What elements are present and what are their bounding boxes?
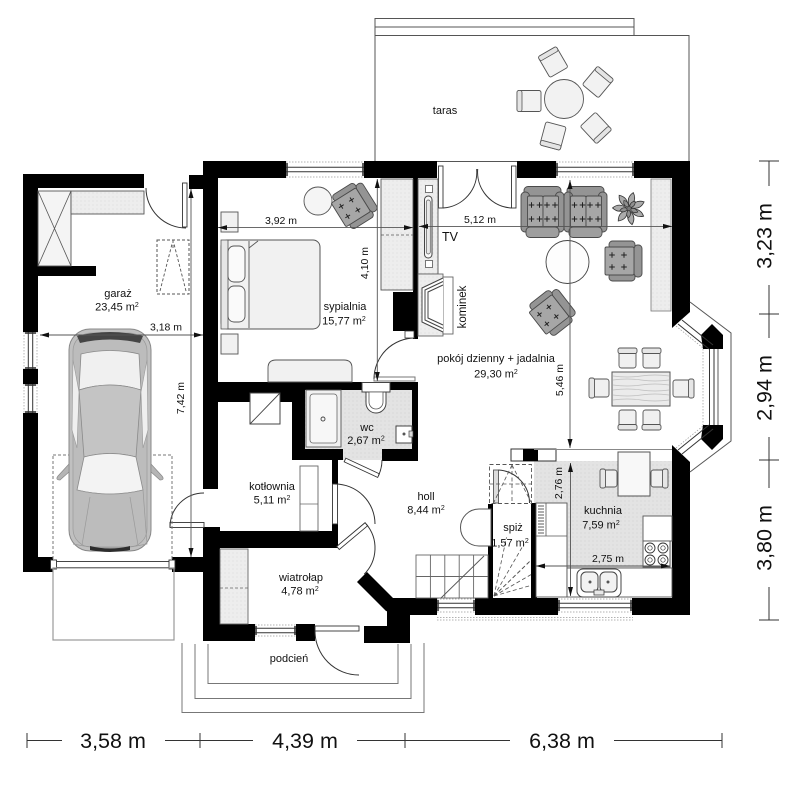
svg-text:4,10 m: 4,10 m xyxy=(359,247,371,279)
svg-text:3,92 m: 3,92 m xyxy=(265,215,297,227)
svg-text:kuchnia: kuchnia xyxy=(584,505,623,517)
svg-text:2,94 m: 2,94 m xyxy=(753,355,777,421)
svg-text:29,30 m2: 29,30 m2 xyxy=(474,369,518,381)
svg-text:5,46 m: 5,46 m xyxy=(554,364,566,396)
svg-text:3,18 m: 3,18 m xyxy=(150,322,182,334)
svg-text:2,76 m: 2,76 m xyxy=(553,467,565,499)
svg-text:15,77 m2: 15,77 m2 xyxy=(322,316,366,328)
svg-text:7,42 m: 7,42 m xyxy=(175,382,187,414)
svg-text:23,45 m2: 23,45 m2 xyxy=(95,302,139,314)
svg-text:sypialnia: sypialnia xyxy=(324,301,368,313)
svg-text:4,78 m2: 4,78 m2 xyxy=(281,586,319,598)
svg-text:TV: TV xyxy=(442,230,459,244)
svg-text:holl: holl xyxy=(417,491,434,503)
svg-text:spiż: spiż xyxy=(503,522,523,534)
svg-text:5,11 m2: 5,11 m2 xyxy=(254,495,291,507)
svg-text:taras: taras xyxy=(433,105,458,117)
svg-text:2,75 m: 2,75 m xyxy=(592,553,624,565)
svg-text:kotłownia: kotłownia xyxy=(249,481,296,493)
svg-text:2,67 m2: 2,67 m2 xyxy=(347,435,385,447)
svg-text:pokój dzienny + jadalnia: pokój dzienny + jadalnia xyxy=(437,353,556,365)
svg-text:8,44 m2: 8,44 m2 xyxy=(407,505,445,517)
svg-text:1,57 m2: 1,57 m2 xyxy=(491,538,529,550)
svg-text:3,58 m: 3,58 m xyxy=(80,729,146,753)
svg-text:wiatrołap: wiatrołap xyxy=(278,572,323,584)
svg-text:6,38 m: 6,38 m xyxy=(529,729,595,753)
svg-text:3,80 m: 3,80 m xyxy=(753,505,777,571)
svg-text:kominek: kominek xyxy=(457,285,469,328)
svg-text:4,39 m: 4,39 m xyxy=(272,729,338,753)
svg-text:wc: wc xyxy=(359,422,374,434)
svg-text:3,23 m: 3,23 m xyxy=(753,203,777,269)
svg-text:7,59 m2: 7,59 m2 xyxy=(582,520,620,532)
svg-text:garaż: garaż xyxy=(104,288,132,300)
svg-text:podcień: podcień xyxy=(270,653,309,665)
svg-text:5,12 m: 5,12 m xyxy=(464,214,496,226)
